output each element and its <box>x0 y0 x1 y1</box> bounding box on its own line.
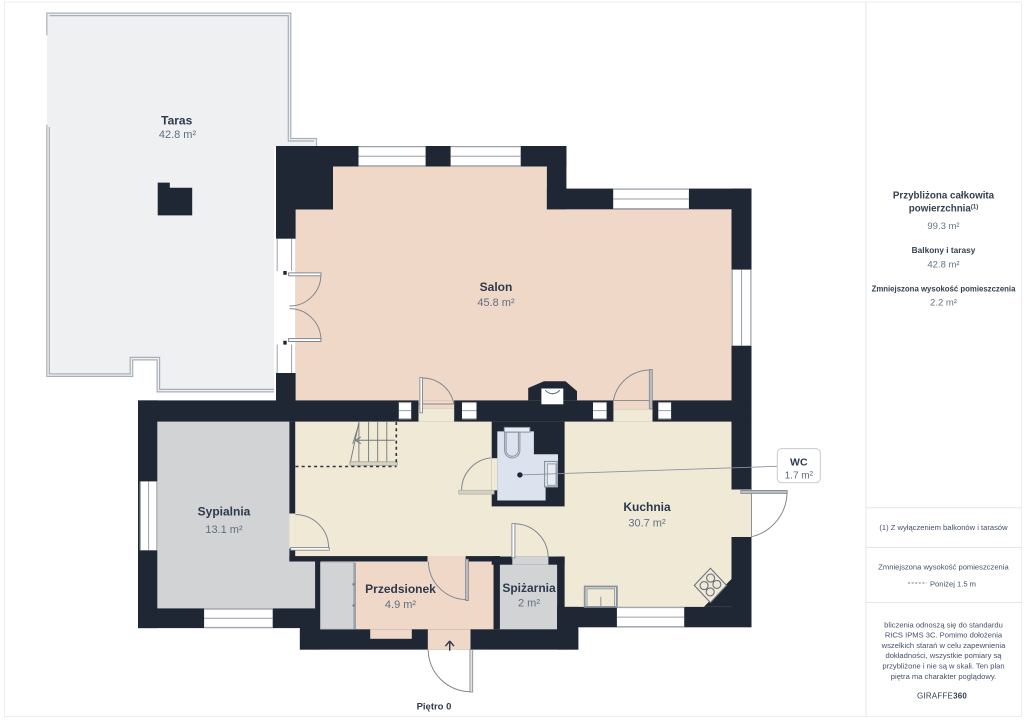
svg-text:RICS IPMS 3C. Pomimo dołożenia: RICS IPMS 3C. Pomimo dołożenia <box>885 631 1003 640</box>
svg-text:13.1 m²: 13.1 m² <box>205 524 243 536</box>
svg-text:Sypialnia: Sypialnia <box>198 505 251 519</box>
svg-text:Spiżarnia: Spiżarnia <box>502 581 556 595</box>
svg-text:przybliżone i nie są w skali.: przybliżone i nie są w skali. Ten plan <box>882 662 1004 671</box>
svg-text:99.3 m²: 99.3 m² <box>927 221 959 232</box>
svg-text:Taras: Taras <box>161 114 192 128</box>
svg-text:Zmniejszona wysokość pomieszcz: Zmniejszona wysokość pomieszczenia <box>872 284 1017 293</box>
svg-text:42.8 m²: 42.8 m² <box>927 260 959 271</box>
svg-text:bliczenia odnoszą się do stand: bliczenia odnoszą się do standardu <box>884 620 1003 629</box>
svg-text:45.8 m²: 45.8 m² <box>477 297 515 309</box>
svg-text:Salon: Salon <box>480 280 513 294</box>
svg-text:Przedsionek: Przedsionek <box>365 582 436 596</box>
svg-text:30.7 m²: 30.7 m² <box>628 517 666 529</box>
svg-text:wszelkich starań w celu zapewn: wszelkich starań w celu zapewnienia <box>881 641 1006 650</box>
svg-text:1.7 m²: 1.7 m² <box>785 471 814 482</box>
svg-text:2.2 m²: 2.2 m² <box>930 298 957 309</box>
svg-text:Kuchnia: Kuchnia <box>623 500 671 514</box>
svg-text:(1) Z wyłączeniem balkonów i t: (1) Z wyłączeniem balkonów i tarasów <box>879 523 1008 532</box>
svg-text:piętra ma charakter poglądowy.: piętra ma charakter poglądowy. <box>891 672 996 681</box>
svg-text:4.9 m²: 4.9 m² <box>385 599 417 611</box>
svg-text:Balkony i tarasy: Balkony i tarasy <box>912 245 976 255</box>
svg-text:Przybliżona całkowita: Przybliżona całkowita <box>893 191 995 202</box>
svg-text:dokładności, wszystkie pomiary: dokładności, wszystkie pomiary są <box>885 651 1002 660</box>
svg-text:WC: WC <box>790 456 808 468</box>
svg-text:Piętro 0: Piętro 0 <box>417 702 452 713</box>
svg-text:2 m²: 2 m² <box>518 598 540 610</box>
svg-text:Poniżej 1.5 m: Poniżej 1.5 m <box>930 579 976 588</box>
svg-text:Zmniejszona wysokość pomieszcz: Zmniejszona wysokość pomieszczenia <box>878 563 1009 572</box>
svg-text:powierzchnia(1): powierzchnia(1) <box>909 204 978 215</box>
svg-text:GIRAFFE360: GIRAFFE360 <box>917 691 967 700</box>
svg-text:42.8 m²: 42.8 m² <box>159 129 197 141</box>
